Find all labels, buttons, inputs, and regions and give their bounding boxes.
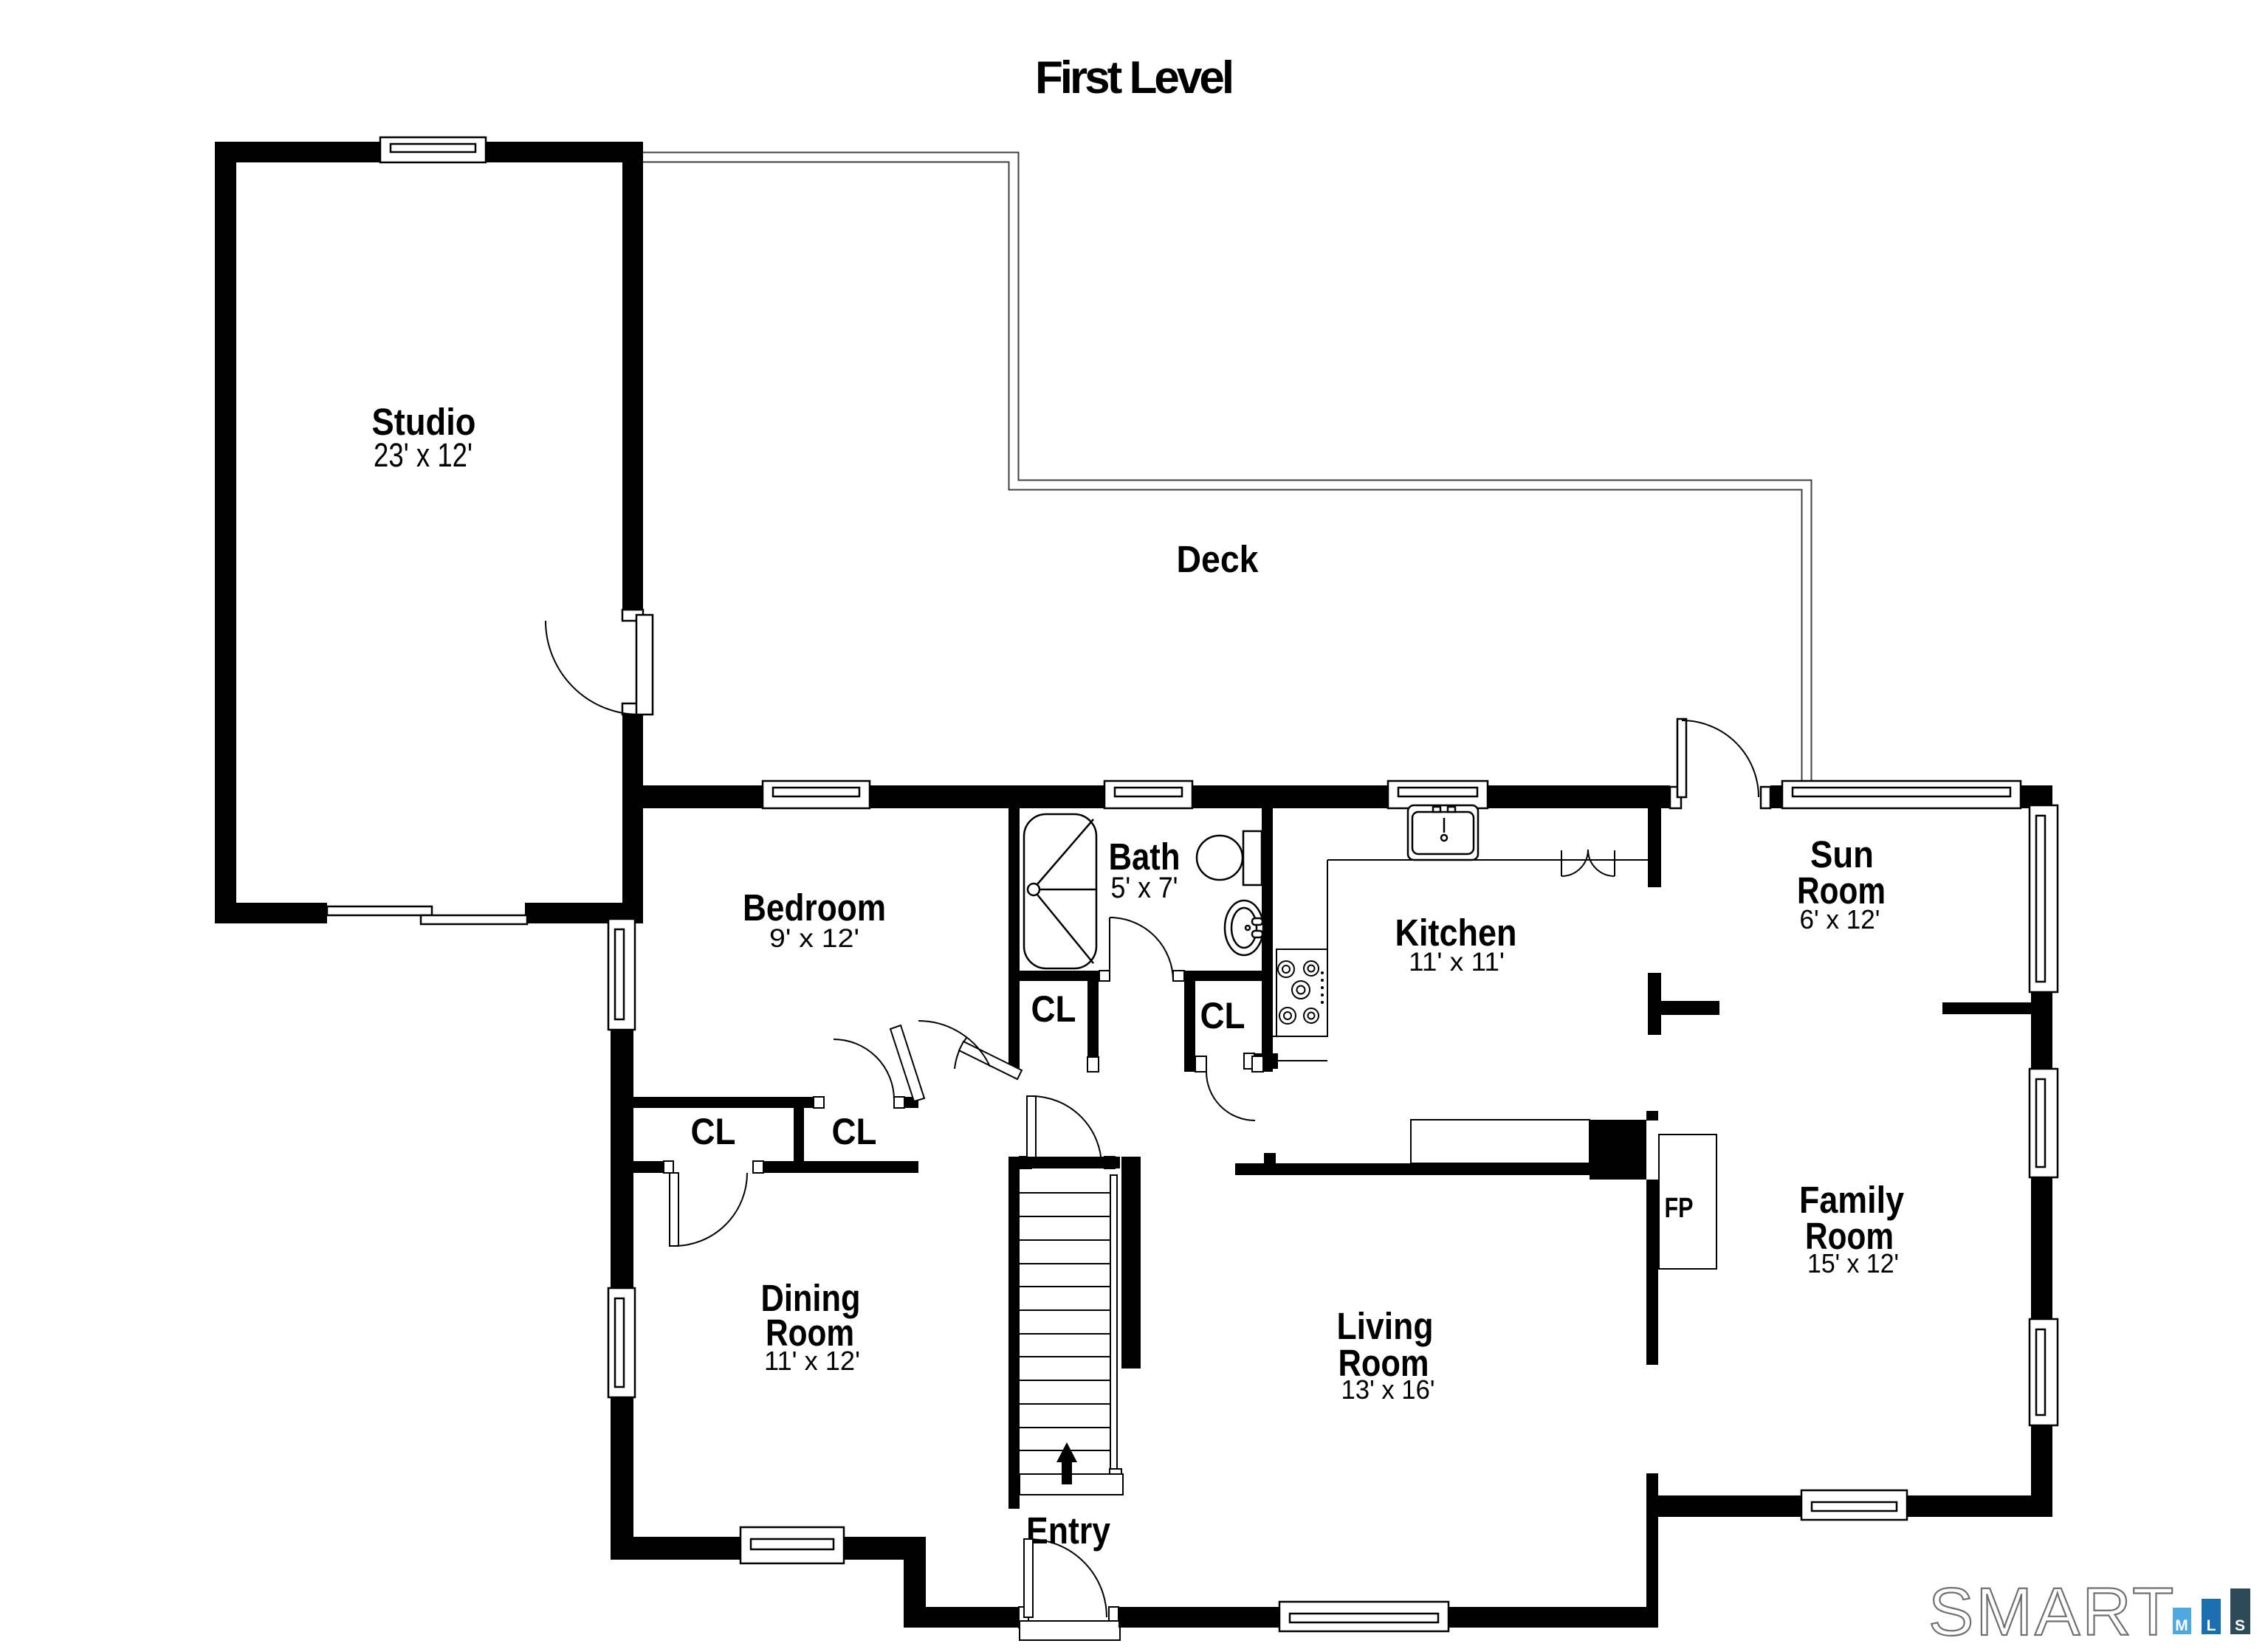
svg-text:Living: Living: [1337, 1305, 1434, 1347]
svg-text:FP: FP: [1665, 1193, 1694, 1224]
svg-text:CL: CL: [1200, 995, 1245, 1036]
svg-text:M: M: [2175, 1617, 2188, 1634]
svg-text:SMART: SMART: [1928, 1574, 2176, 1649]
svg-text:15' x 12': 15' x 12': [1807, 1248, 1899, 1278]
svg-text:5' x 7': 5' x 7': [1111, 872, 1178, 904]
svg-text:CL: CL: [832, 1111, 877, 1152]
svg-text:L: L: [2207, 1617, 2216, 1634]
svg-text:Deck: Deck: [1177, 538, 1260, 580]
svg-text:CL: CL: [1031, 988, 1076, 1030]
svg-text:6' x 12': 6' x 12': [1800, 904, 1880, 934]
svg-text:23' x 12': 23' x 12': [374, 436, 472, 474]
svg-text:11' x 12': 11' x 12': [764, 1346, 860, 1376]
svg-text:9' x 12': 9' x 12': [769, 924, 859, 953]
svg-text:11' x 11': 11' x 11': [1409, 948, 1505, 977]
svg-text:S: S: [2235, 1617, 2245, 1634]
svg-text:13' x 16': 13' x 16': [1341, 1374, 1435, 1405]
svg-text:First Level: First Level: [1035, 52, 1231, 103]
svg-text:Entry: Entry: [1026, 1509, 1111, 1552]
svg-text:Bedroom: Bedroom: [743, 887, 886, 929]
svg-text:CL: CL: [691, 1111, 736, 1152]
